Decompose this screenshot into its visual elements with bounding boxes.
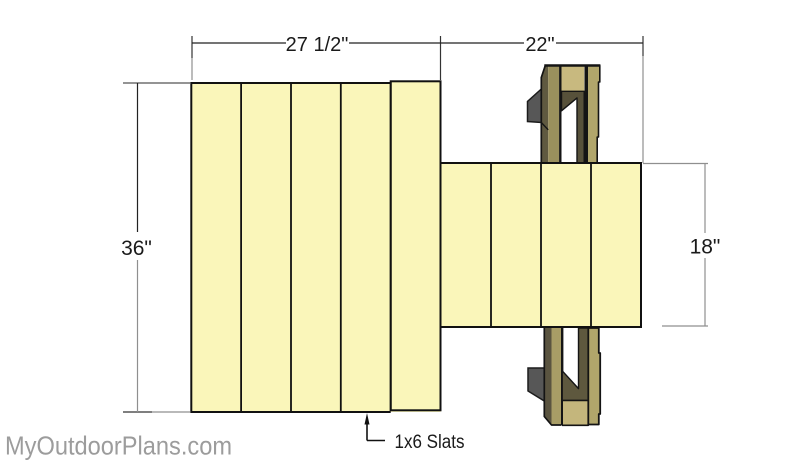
svg-text:1x6 Slats: 1x6 Slats (395, 432, 465, 453)
svg-text:MyOutdoorPlans.com: MyOutdoorPlans.com (5, 431, 232, 461)
svg-text:22": 22" (525, 34, 554, 56)
svg-text:36": 36" (121, 237, 152, 260)
svg-text:18": 18" (690, 236, 721, 259)
svg-text:27 1/2": 27 1/2" (286, 34, 349, 56)
